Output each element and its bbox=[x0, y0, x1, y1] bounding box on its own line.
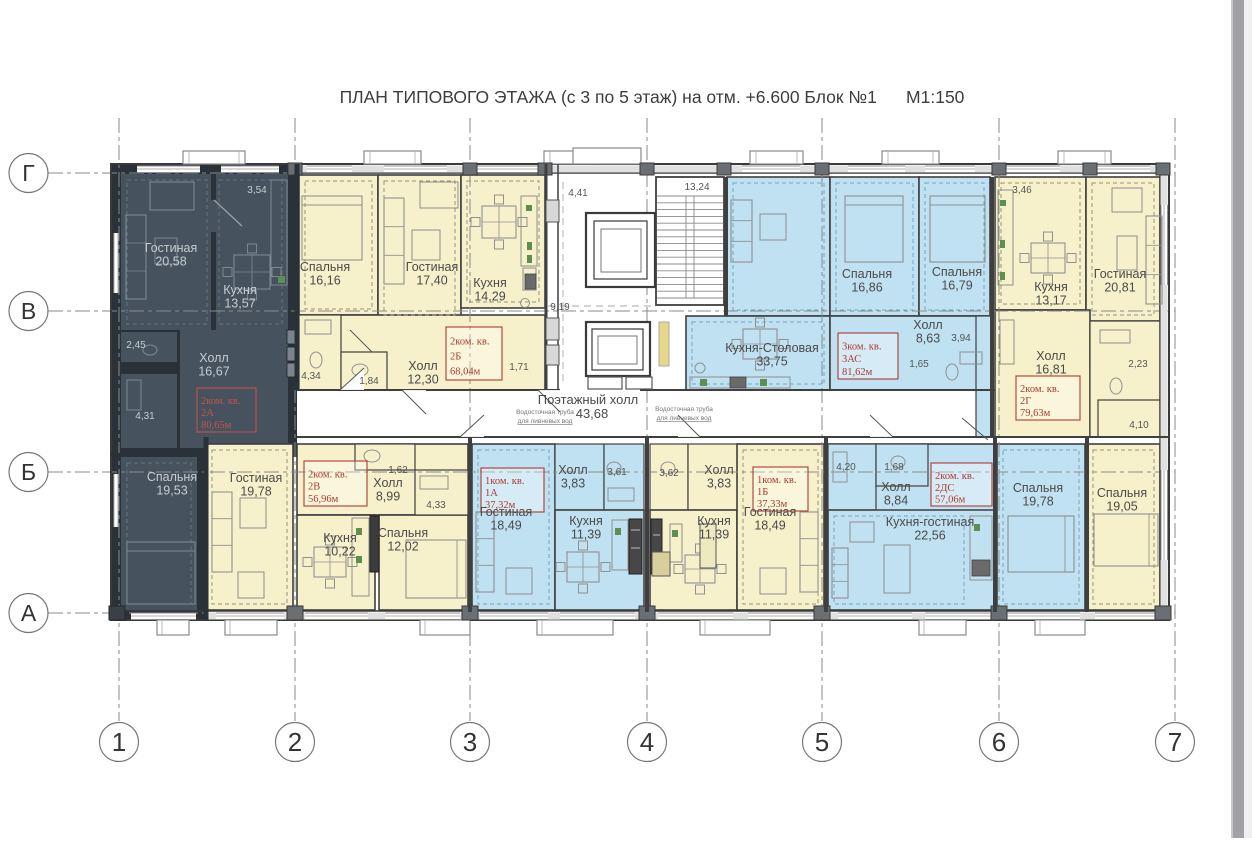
svg-text:Спальня: Спальня bbox=[1097, 486, 1147, 500]
svg-text:4,34: 4,34 bbox=[301, 371, 321, 382]
svg-text:1,68: 1,68 bbox=[884, 462, 904, 473]
svg-text:8,99: 8,99 bbox=[376, 490, 400, 504]
svg-text:4: 4 bbox=[640, 727, 654, 757]
svg-text:3,54: 3,54 bbox=[247, 185, 267, 196]
svg-text:19,78: 19,78 bbox=[1022, 495, 1053, 509]
svg-text:4,31: 4,31 bbox=[135, 411, 155, 422]
svg-text:Кухня: Кухня bbox=[1034, 280, 1067, 294]
svg-text:13,57: 13,57 bbox=[224, 297, 255, 311]
svg-text:Поэтажный холл: Поэтажный холл bbox=[538, 392, 639, 407]
svg-text:2,23: 2,23 bbox=[1128, 359, 1148, 370]
svg-text:1,62: 1,62 bbox=[388, 465, 408, 476]
svg-text:20,81: 20,81 bbox=[1104, 281, 1135, 295]
svg-text:16,16: 16,16 bbox=[309, 274, 340, 288]
svg-text:Холл: Холл bbox=[199, 351, 228, 365]
svg-text:Кухня-Столовая: Кухня-Столовая bbox=[725, 341, 819, 355]
svg-text:1: 1 bbox=[112, 727, 126, 757]
svg-text:2А: 2А bbox=[201, 408, 214, 419]
svg-text:Спальня: Спальня bbox=[842, 267, 892, 281]
svg-text:1,84: 1,84 bbox=[359, 376, 379, 387]
svg-text:3,94: 3,94 bbox=[951, 333, 971, 344]
svg-text:43,68: 43,68 bbox=[576, 406, 609, 421]
svg-text:16,86: 16,86 bbox=[851, 281, 882, 295]
svg-text:3,46: 3,46 bbox=[1012, 185, 1032, 196]
svg-text:3,83: 3,83 bbox=[707, 477, 731, 491]
svg-text:Спальня: Спальня bbox=[932, 265, 982, 279]
svg-text:Гостиная: Гостиная bbox=[145, 241, 197, 255]
svg-text:2ком. кв.: 2ком. кв. bbox=[201, 396, 240, 407]
svg-text:19,05: 19,05 bbox=[1106, 500, 1137, 514]
svg-text:20,58: 20,58 bbox=[155, 255, 186, 269]
svg-text:Б: Б bbox=[21, 459, 36, 485]
svg-text:56,96м: 56,96м bbox=[308, 494, 339, 505]
svg-text:4,33: 4,33 bbox=[426, 500, 446, 511]
svg-text:68,04м: 68,04м bbox=[450, 366, 481, 377]
svg-text:Спальня: Спальня bbox=[147, 470, 197, 484]
svg-text:2ДС: 2ДС bbox=[935, 483, 954, 494]
svg-text:19,53: 19,53 bbox=[156, 484, 187, 498]
svg-text:Холл: Холл bbox=[881, 480, 910, 494]
svg-text:17,40: 17,40 bbox=[416, 274, 447, 288]
svg-text:16,81: 16,81 bbox=[1035, 363, 1066, 377]
svg-text:для ливневых вод: для ливневых вод bbox=[657, 415, 712, 422]
svg-text:Холл: Холл bbox=[408, 359, 437, 373]
svg-text:2ком. кв.: 2ком. кв. bbox=[1020, 384, 1059, 395]
svg-text:2ком. кв.: 2ком. кв. bbox=[935, 471, 974, 482]
svg-text:2: 2 bbox=[288, 727, 302, 757]
svg-text:В: В bbox=[21, 298, 36, 324]
svg-text:Кухня: Кухня bbox=[323, 531, 356, 545]
svg-text:16,67: 16,67 bbox=[198, 365, 229, 379]
svg-text:80,65м: 80,65м bbox=[201, 420, 232, 431]
svg-text:Кухня: Кухня bbox=[223, 283, 256, 297]
svg-text:4,10: 4,10 bbox=[1129, 420, 1149, 431]
svg-text:1Б: 1Б bbox=[757, 487, 768, 498]
svg-text:81,62м: 81,62м bbox=[842, 367, 873, 378]
svg-text:22,56: 22,56 bbox=[914, 529, 945, 543]
svg-text:3,83: 3,83 bbox=[561, 477, 585, 491]
svg-text:3,61: 3,61 bbox=[607, 467, 627, 478]
svg-text:13,24: 13,24 bbox=[684, 182, 709, 193]
svg-text:Кухня-гостиная: Кухня-гостиная bbox=[886, 515, 974, 529]
svg-text:1,71: 1,71 bbox=[509, 362, 529, 373]
svg-text:4,41: 4,41 bbox=[568, 188, 588, 199]
svg-text:Водосточная труба: Водосточная труба bbox=[655, 405, 713, 413]
svg-text:2Б: 2Б bbox=[450, 351, 461, 362]
svg-text:10,22: 10,22 bbox=[324, 545, 355, 559]
svg-text:Холл: Холл bbox=[373, 476, 402, 490]
svg-text:12,02: 12,02 bbox=[387, 540, 418, 554]
svg-text:2В: 2В bbox=[308, 482, 320, 493]
svg-text:Спальня: Спальня bbox=[378, 526, 428, 540]
svg-text:18,49: 18,49 bbox=[754, 519, 785, 533]
svg-text:3: 3 bbox=[463, 727, 477, 757]
svg-text:8,63: 8,63 bbox=[916, 332, 940, 346]
svg-text:Спальня: Спальня bbox=[1013, 481, 1063, 495]
svg-text:Кухня: Кухня bbox=[473, 276, 506, 290]
svg-text:Водосточная труба: Водосточная труба bbox=[516, 408, 574, 416]
svg-text:1ком. кв.: 1ком. кв. bbox=[757, 475, 796, 486]
svg-text:8,84: 8,84 bbox=[884, 494, 908, 508]
svg-text:Холл: Холл bbox=[1036, 349, 1065, 363]
svg-text:ПЛАН ТИПОВОГО ЭТАЖА (с 3 по 5: ПЛАН ТИПОВОГО ЭТАЖА (с 3 по 5 этаж) на о… bbox=[340, 87, 965, 107]
svg-text:7: 7 bbox=[1168, 727, 1182, 757]
svg-text:3,62: 3,62 bbox=[659, 468, 679, 479]
svg-text:Холл: Холл bbox=[913, 318, 942, 332]
svg-text:11,39: 11,39 bbox=[699, 528, 729, 542]
svg-text:Гостиная: Гостиная bbox=[744, 505, 796, 519]
svg-text:18,49: 18,49 bbox=[490, 519, 521, 533]
svg-text:Гостиная: Гостиная bbox=[230, 471, 282, 485]
svg-text:Кухня: Кухня bbox=[569, 514, 602, 528]
svg-text:3ком. кв.: 3ком. кв. bbox=[842, 341, 881, 352]
svg-text:Г: Г bbox=[22, 160, 35, 186]
svg-text:12,30: 12,30 bbox=[407, 373, 438, 387]
svg-text:33,75: 33,75 bbox=[756, 355, 787, 369]
svg-text:2Г: 2Г bbox=[1020, 396, 1031, 407]
svg-text:3АС: 3АС bbox=[842, 354, 861, 365]
svg-text:1,65: 1,65 bbox=[909, 359, 929, 370]
svg-text:Спальня: Спальня bbox=[300, 260, 350, 274]
svg-text:5: 5 bbox=[815, 727, 829, 757]
svg-text:1ком. кв.: 1ком. кв. bbox=[485, 476, 524, 487]
svg-text:Кухня: Кухня bbox=[697, 514, 730, 528]
svg-text:2ком. кв.: 2ком. кв. bbox=[308, 469, 347, 480]
svg-text:16,79: 16,79 bbox=[941, 279, 972, 293]
svg-text:14,29: 14,29 bbox=[474, 290, 505, 304]
svg-text:А: А bbox=[21, 600, 37, 626]
svg-text:11,39: 11,39 bbox=[571, 528, 601, 542]
svg-text:Холл: Холл bbox=[704, 463, 733, 477]
svg-text:13,17: 13,17 bbox=[1035, 294, 1066, 308]
svg-text:2,45: 2,45 bbox=[126, 340, 146, 351]
svg-text:Холл: Холл bbox=[558, 463, 587, 477]
svg-text:79,63м: 79,63м bbox=[1020, 408, 1051, 419]
svg-text:Гостиная: Гостиная bbox=[406, 260, 458, 274]
svg-text:для ливневых вод: для ливневых вод bbox=[518, 418, 573, 425]
svg-text:19,78: 19,78 bbox=[240, 485, 271, 499]
svg-text:6: 6 bbox=[992, 727, 1006, 757]
svg-text:57,06м: 57,06м bbox=[935, 494, 966, 505]
svg-text:Гостиная: Гостиная bbox=[1094, 267, 1146, 281]
svg-text:1А: 1А bbox=[485, 488, 498, 499]
svg-text:2ком. кв.: 2ком. кв. bbox=[450, 336, 489, 347]
svg-text:9,19: 9,19 bbox=[550, 302, 570, 313]
svg-text:4,20: 4,20 bbox=[836, 462, 856, 473]
svg-text:Гостиная: Гостиная bbox=[480, 505, 532, 519]
